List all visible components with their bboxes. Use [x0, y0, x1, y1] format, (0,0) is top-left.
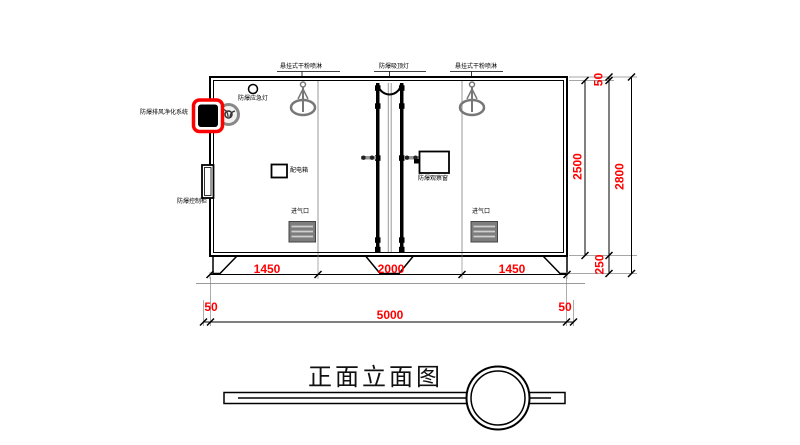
label-power-box: 配电箱	[290, 168, 308, 175]
drawing-title: 正面立面图	[308, 357, 443, 392]
emergency-light-symbol	[249, 85, 258, 94]
label-air-inlet-left: 进气口	[291, 209, 309, 216]
air-inlet-right-symbol	[471, 222, 498, 243]
dim-seg-right: 1450	[477, 262, 547, 276]
dim-total-height: 2800	[613, 155, 626, 199]
observation-window-symbol	[414, 152, 449, 174]
label-control-cabinet: 防爆控制柜	[177, 199, 207, 206]
label-sprinkler-left: 悬挂式干粉喷淋	[280, 64, 322, 71]
dim-base-height: 250	[593, 243, 606, 287]
dim-total-width: 5000	[355, 308, 425, 322]
label-emergency-light: 防爆应急灯	[238, 96, 268, 103]
power-box-symbol	[272, 165, 288, 178]
dim-margin-left: 50	[191, 300, 231, 314]
label-sprinkler-right: 悬挂式干粉喷淋	[455, 64, 497, 71]
label-exhaust-purifier: 防爆排风净化系统	[140, 110, 188, 117]
label-ceiling-light: 防爆吸顶灯	[379, 64, 409, 71]
control-cabinet-symbol	[202, 165, 214, 198]
dim-inner-height: 2500	[571, 145, 584, 189]
air-inlet-left-symbol	[289, 222, 316, 243]
elevation-drawing-page: 悬挂式干粉喷淋 防爆吸顶灯 悬挂式干粉喷淋 防爆应急灯 防爆排风净化系统 防爆控…	[0, 0, 800, 445]
dim-seg-left: 1450	[232, 262, 302, 276]
label-observation-window: 防爆观察窗	[418, 176, 448, 183]
dim-margin-right: 50	[545, 300, 585, 314]
dim-roof-thickness: 50	[592, 58, 605, 102]
label-air-inlet-right: 进气口	[472, 209, 490, 216]
dim-seg-mid: 2000	[356, 262, 426, 276]
